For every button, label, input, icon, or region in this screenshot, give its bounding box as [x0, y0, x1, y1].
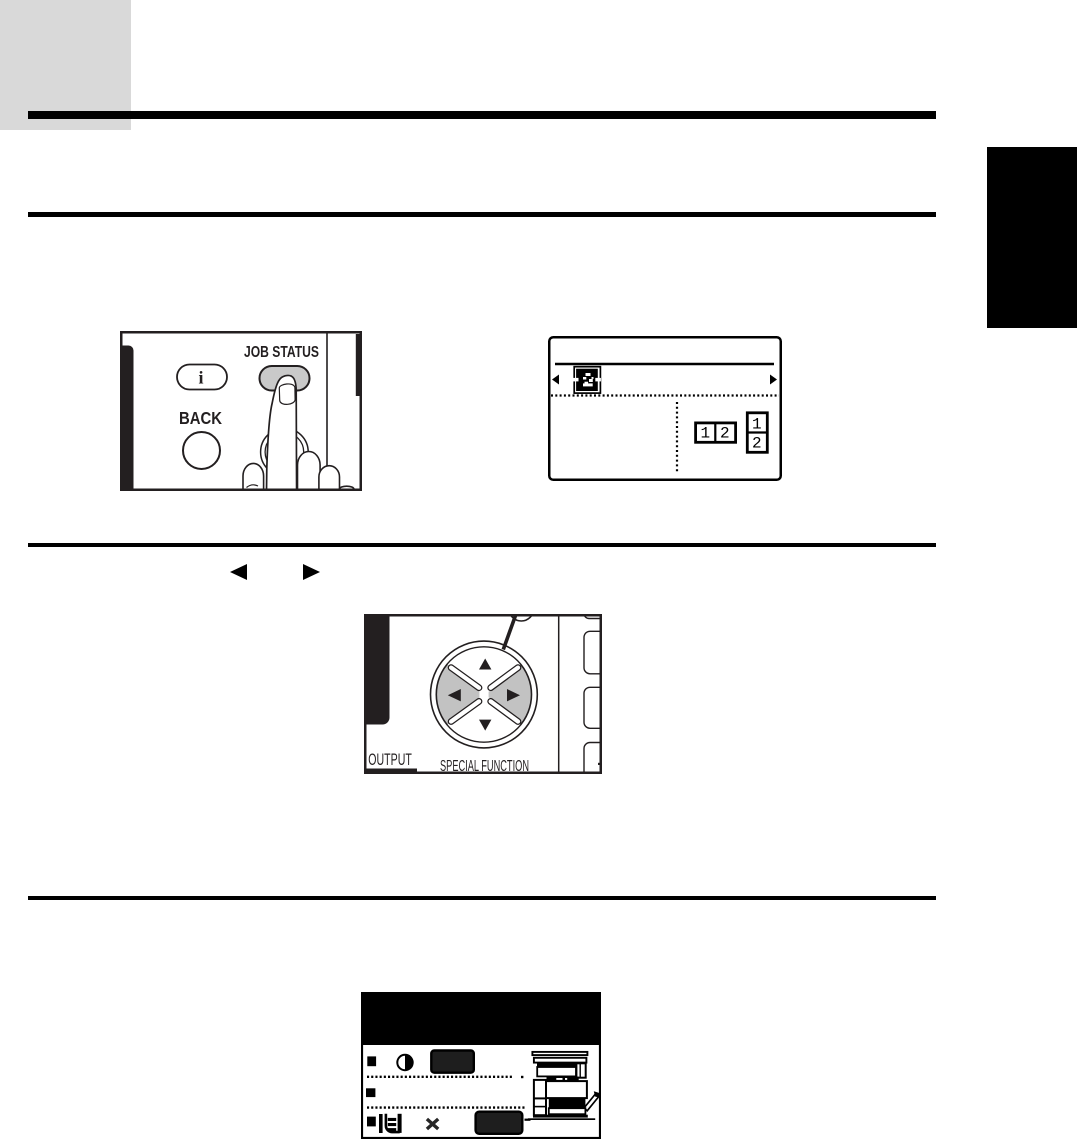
- svg-text:2: 2: [720, 424, 730, 442]
- svg-text:BACK: BACK: [179, 407, 222, 427]
- svg-text:1: 1: [701, 424, 711, 442]
- svg-text:OUTPUT: OUTPUT: [368, 750, 412, 769]
- svg-text:1: 1: [752, 415, 762, 433]
- svg-text:2: 2: [752, 434, 762, 452]
- svg-text:i: i: [198, 367, 203, 387]
- svg-text:JOB STATUS: JOB STATUS: [244, 343, 319, 360]
